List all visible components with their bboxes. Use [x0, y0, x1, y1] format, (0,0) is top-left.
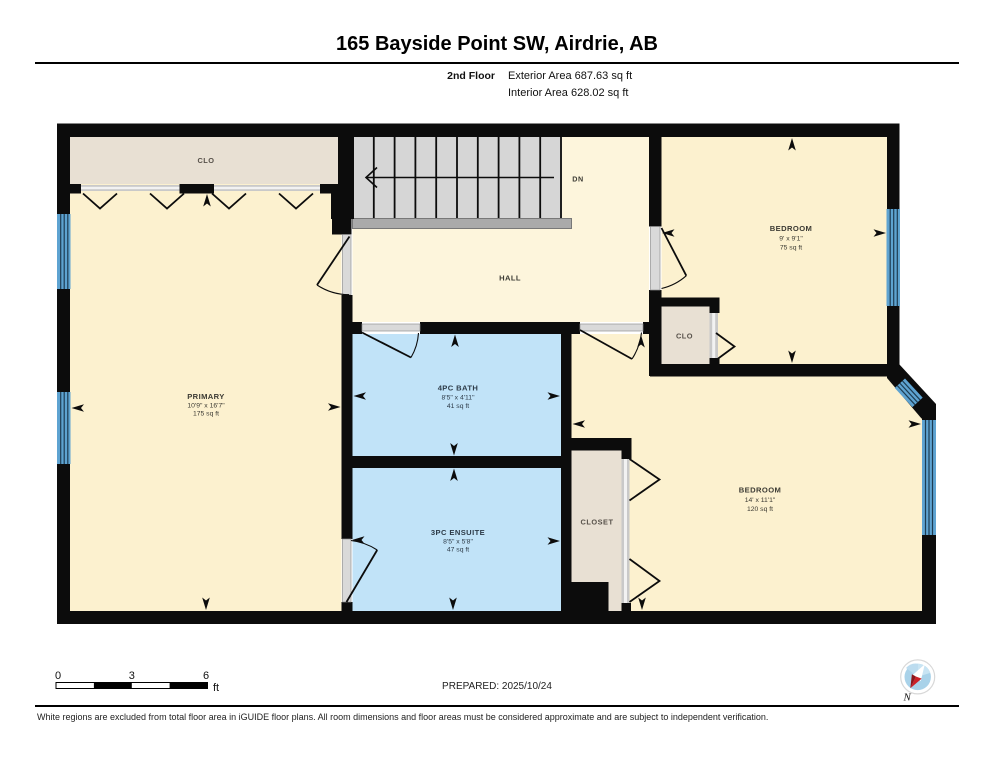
svg-text:8'5" x 5'8": 8'5" x 5'8" [443, 539, 473, 546]
svg-text:9' x 9'1": 9' x 9'1" [779, 236, 803, 243]
svg-text:120 sq ft: 120 sq ft [747, 506, 773, 513]
svg-text:8'5" x 4'11": 8'5" x 4'11" [442, 395, 476, 402]
svg-text:4PC BATH: 4PC BATH [438, 384, 479, 393]
svg-text:14' x 11'1": 14' x 11'1" [745, 497, 776, 504]
svg-text:47 sq ft: 47 sq ft [447, 547, 469, 554]
svg-text:75 sq ft: 75 sq ft [780, 245, 802, 252]
svg-text:PRIMARY: PRIMARY [187, 392, 225, 401]
svg-text:CLOSET: CLOSET [581, 518, 614, 527]
svg-text:N: N [903, 692, 912, 704]
svg-text:HALL: HALL [499, 274, 521, 283]
svg-text:175 sq ft: 175 sq ft [193, 411, 219, 418]
svg-text:41 sq ft: 41 sq ft [447, 403, 469, 410]
svg-text:10'9" x 16'7": 10'9" x 16'7" [187, 403, 225, 410]
svg-text:BEDROOM: BEDROOM [739, 486, 781, 495]
svg-text:CLO: CLO [676, 332, 693, 341]
svg-text:CLO: CLO [197, 156, 214, 165]
svg-text:DN: DN [572, 175, 583, 184]
svg-text:3PC ENSUITE: 3PC ENSUITE [431, 528, 485, 537]
svg-text:BEDROOM: BEDROOM [770, 224, 812, 233]
